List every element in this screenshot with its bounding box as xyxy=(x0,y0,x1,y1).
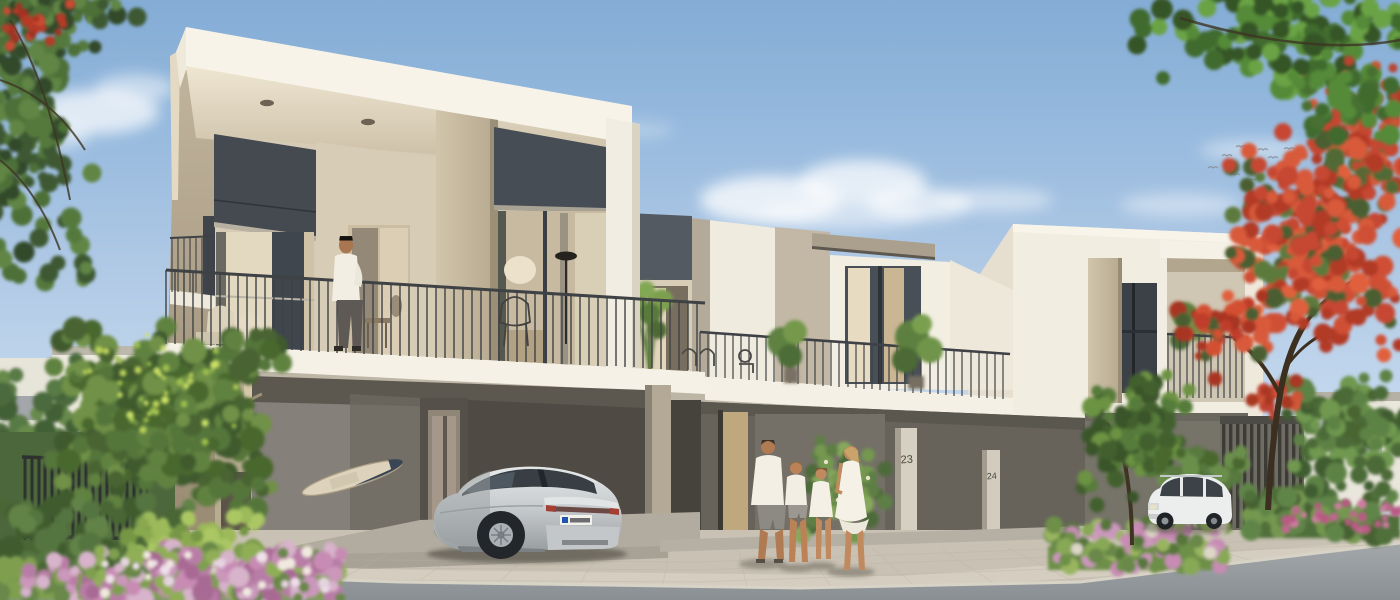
svg-text:23: 23 xyxy=(900,454,913,467)
svg-text:24: 24 xyxy=(986,471,997,482)
